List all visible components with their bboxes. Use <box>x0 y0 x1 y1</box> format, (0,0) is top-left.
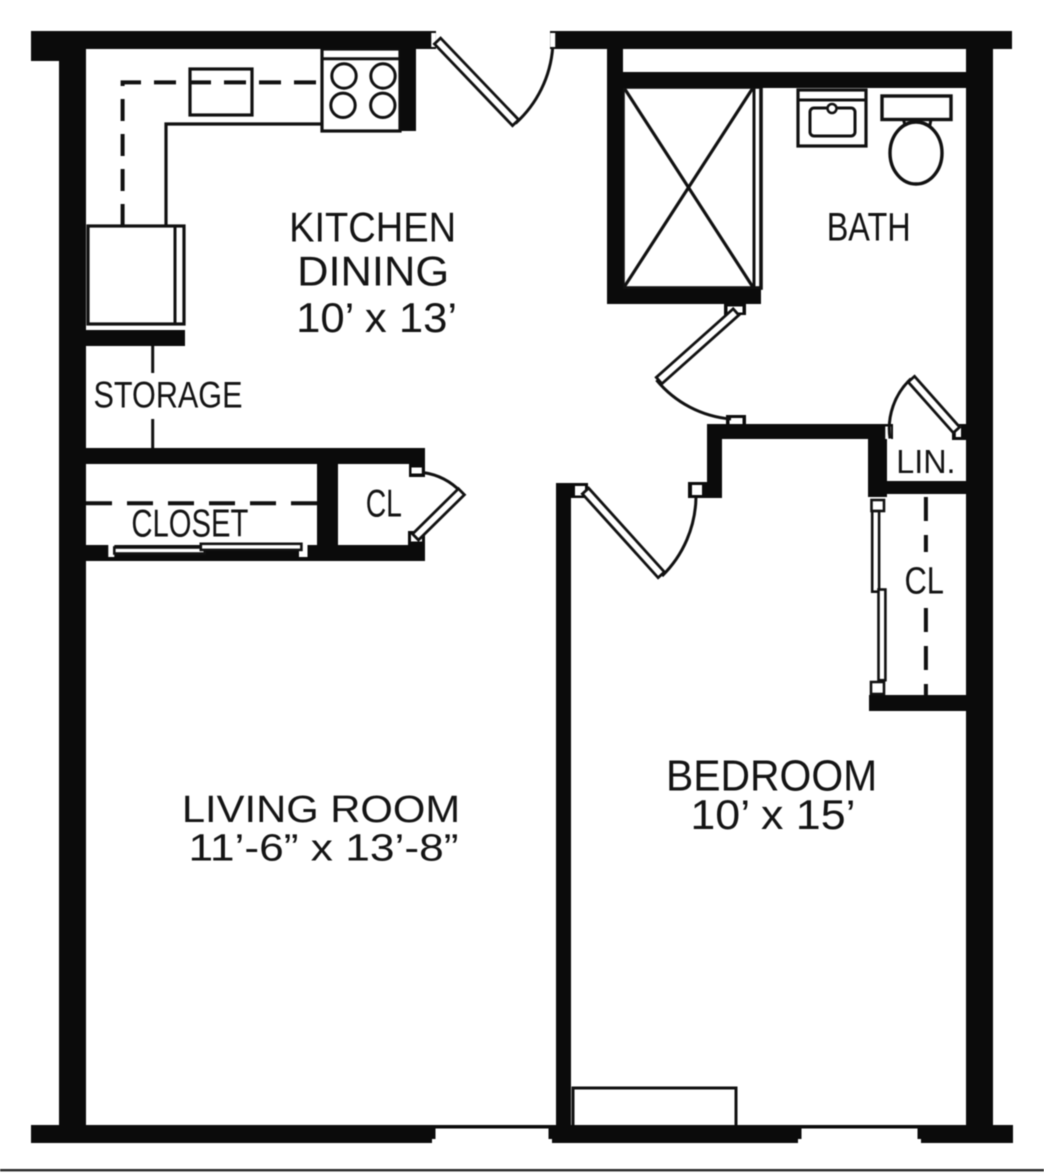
svg-text:10’ x 15’: 10’ x 15’ <box>690 791 855 838</box>
svg-text:KITCHEN: KITCHEN <box>289 203 456 250</box>
svg-text:11’-6” x 13’-8”: 11’-6” x 13’-8” <box>189 828 459 870</box>
svg-text:LIVING ROOM: LIVING ROOM <box>182 789 460 831</box>
svg-text:DINING: DINING <box>297 248 449 295</box>
svg-text:CL: CL <box>904 560 944 602</box>
svg-text:CLOSET: CLOSET <box>131 503 248 546</box>
svg-text:BATH: BATH <box>827 205 911 249</box>
svg-text:CL: CL <box>366 483 402 526</box>
svg-text:LIN.: LIN. <box>896 443 955 480</box>
svg-text:10’ x 13’: 10’ x 13’ <box>296 294 457 341</box>
svg-text:STORAGE: STORAGE <box>94 375 243 416</box>
